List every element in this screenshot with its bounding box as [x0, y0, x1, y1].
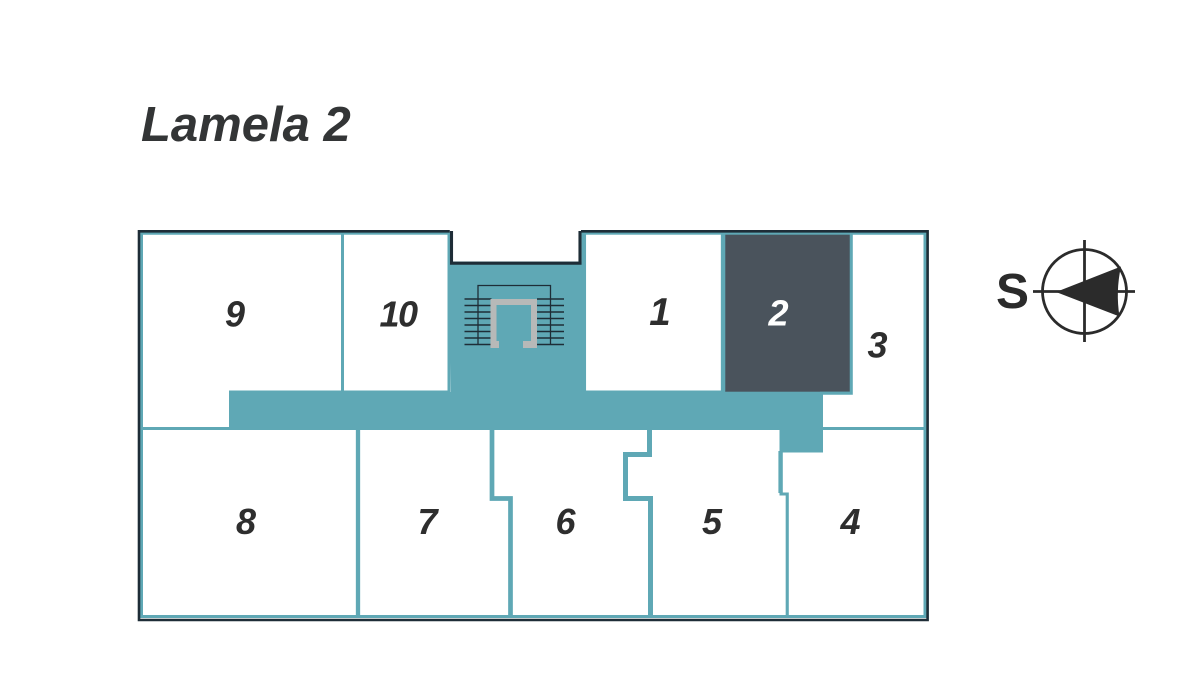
svg-text:4: 4 [839, 501, 860, 542]
svg-text:Lamela 2: Lamela 2 [141, 98, 351, 152]
svg-text:6: 6 [555, 501, 576, 542]
svg-text:7: 7 [417, 501, 439, 542]
svg-text:S: S [996, 264, 1029, 319]
svg-text:5: 5 [702, 501, 723, 542]
svg-text:3: 3 [867, 324, 887, 365]
svg-text:9: 9 [225, 293, 245, 334]
svg-text:2: 2 [767, 293, 788, 334]
svg-text:1: 1 [649, 291, 670, 334]
svg-text:10: 10 [379, 294, 418, 335]
svg-text:8: 8 [236, 501, 256, 542]
